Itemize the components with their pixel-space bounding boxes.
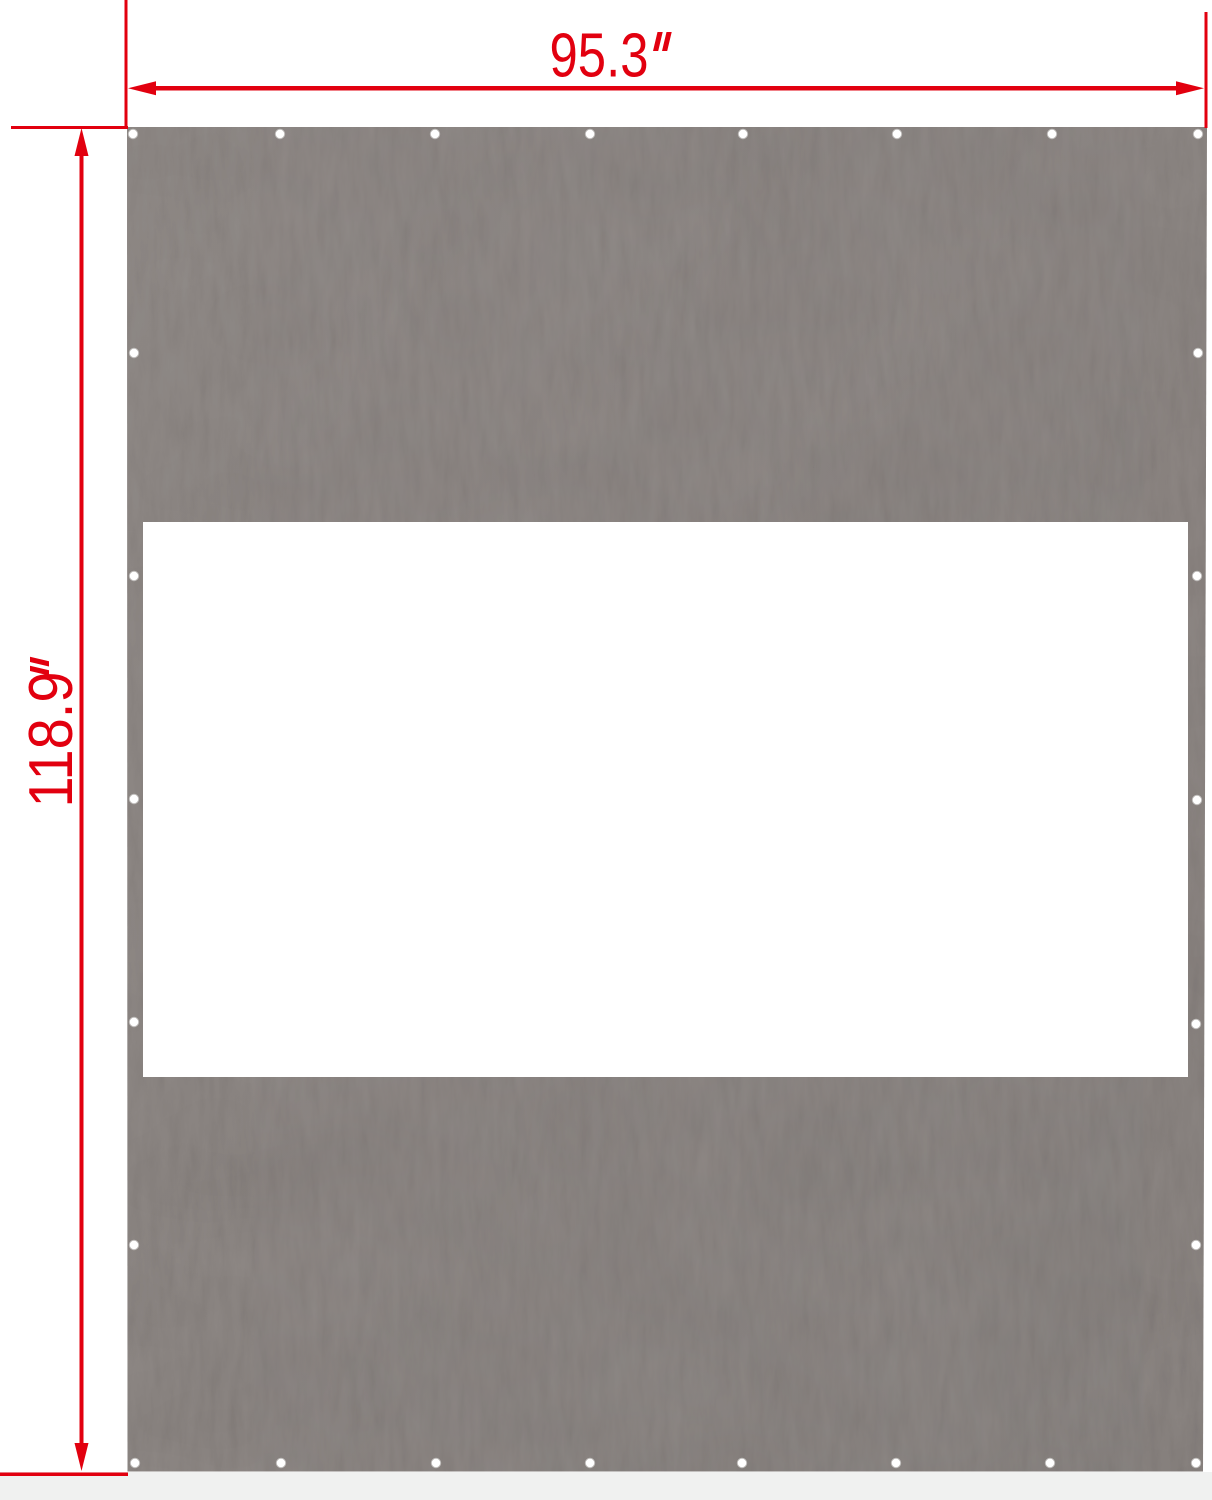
svg-text:118.9: 118.9 <box>17 672 86 808</box>
svg-text:95.3: 95.3 <box>550 22 649 91</box>
